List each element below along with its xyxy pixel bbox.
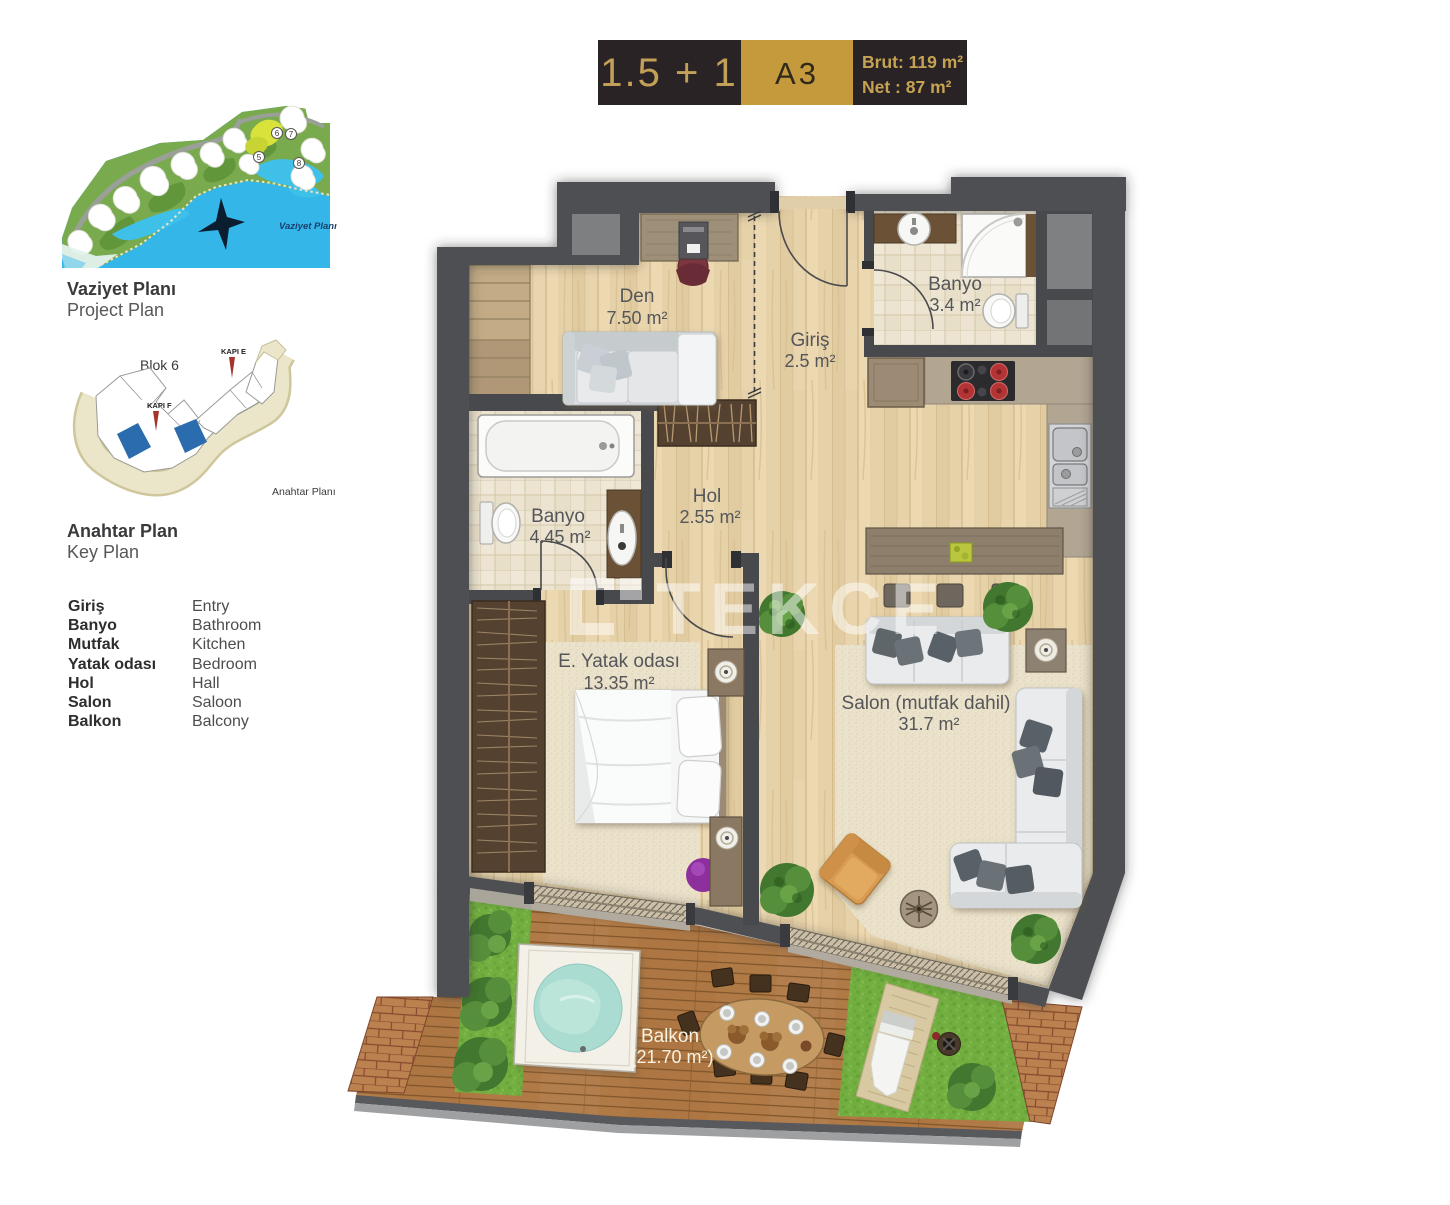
svg-text:2.55 m²: 2.55 m²: [679, 507, 740, 527]
svg-text:(21.70 m²): (21.70 m²): [630, 1047, 713, 1067]
svg-text:KAPI F: KAPI F: [147, 401, 172, 410]
svg-text:Balcony: Balcony: [192, 713, 249, 730]
svg-text:6: 6: [275, 129, 280, 138]
svg-text:Hall: Hall: [192, 675, 220, 692]
svg-text:Kitchen: Kitchen: [192, 636, 245, 653]
svg-text:Giriş: Giriş: [790, 330, 829, 351]
svg-text:Bedroom: Bedroom: [192, 656, 257, 673]
svg-text:7.50 m²: 7.50 m²: [606, 308, 667, 328]
svg-text:Project Plan: Project Plan: [67, 300, 164, 320]
svg-text:Vaziyet Planı: Vaziyet Planı: [279, 221, 337, 232]
svg-text:Balkon: Balkon: [641, 1026, 699, 1047]
svg-text:Anahtar Planı: Anahtar Planı: [272, 486, 336, 498]
svg-text:Vaziyet Planı: Vaziyet Planı: [67, 279, 176, 299]
svg-text:Brut: 119 m²: Brut: 119 m²: [862, 52, 963, 72]
svg-text:Anahtar Plan: Anahtar Plan: [67, 521, 178, 541]
svg-text:A3: A3: [775, 56, 819, 91]
svg-text:Banyo: Banyo: [531, 506, 585, 527]
svg-text:7: 7: [289, 130, 294, 139]
svg-text:Den: Den: [620, 286, 655, 307]
svg-text:Giriş: Giriş: [68, 598, 105, 615]
svg-text:TEKCE: TEKCE: [656, 569, 948, 650]
svg-text:3.4 m²: 3.4 m²: [929, 295, 980, 315]
svg-text:Net : 87 m²: Net : 87 m²: [862, 77, 952, 97]
svg-text:1.5 + 1: 1.5 + 1: [600, 51, 737, 95]
svg-text:E. Yatak odası: E. Yatak odası: [558, 651, 680, 672]
svg-text:Bathroom: Bathroom: [192, 617, 261, 634]
svg-text:13.35 m²: 13.35 m²: [583, 673, 654, 693]
svg-text:Banyo: Banyo: [928, 274, 982, 295]
svg-text:8: 8: [297, 159, 302, 168]
svg-text:Hol: Hol: [68, 675, 94, 692]
svg-text:Yatak odası: Yatak odası: [68, 656, 156, 673]
svg-text:KAPI E: KAPI E: [221, 347, 246, 356]
svg-text:Hol: Hol: [693, 486, 722, 507]
svg-text:Entry: Entry: [192, 598, 229, 615]
svg-text:Key Plan: Key Plan: [67, 542, 139, 562]
svg-text:Balkon: Balkon: [68, 713, 121, 730]
svg-text:2.5 m²: 2.5 m²: [784, 351, 835, 371]
svg-text:Banyo: Banyo: [68, 617, 117, 634]
svg-text:Salon: Salon: [68, 694, 112, 711]
svg-text:Mutfak: Mutfak: [68, 636, 120, 653]
svg-text:5: 5: [257, 153, 262, 162]
svg-text:Salon (mutfak dahil): Salon (mutfak dahil): [842, 693, 1011, 714]
svg-text:Saloon: Saloon: [192, 694, 242, 711]
svg-text:4.45 m²: 4.45 m²: [529, 527, 590, 547]
svg-text:31.7 m²: 31.7 m²: [898, 714, 959, 734]
